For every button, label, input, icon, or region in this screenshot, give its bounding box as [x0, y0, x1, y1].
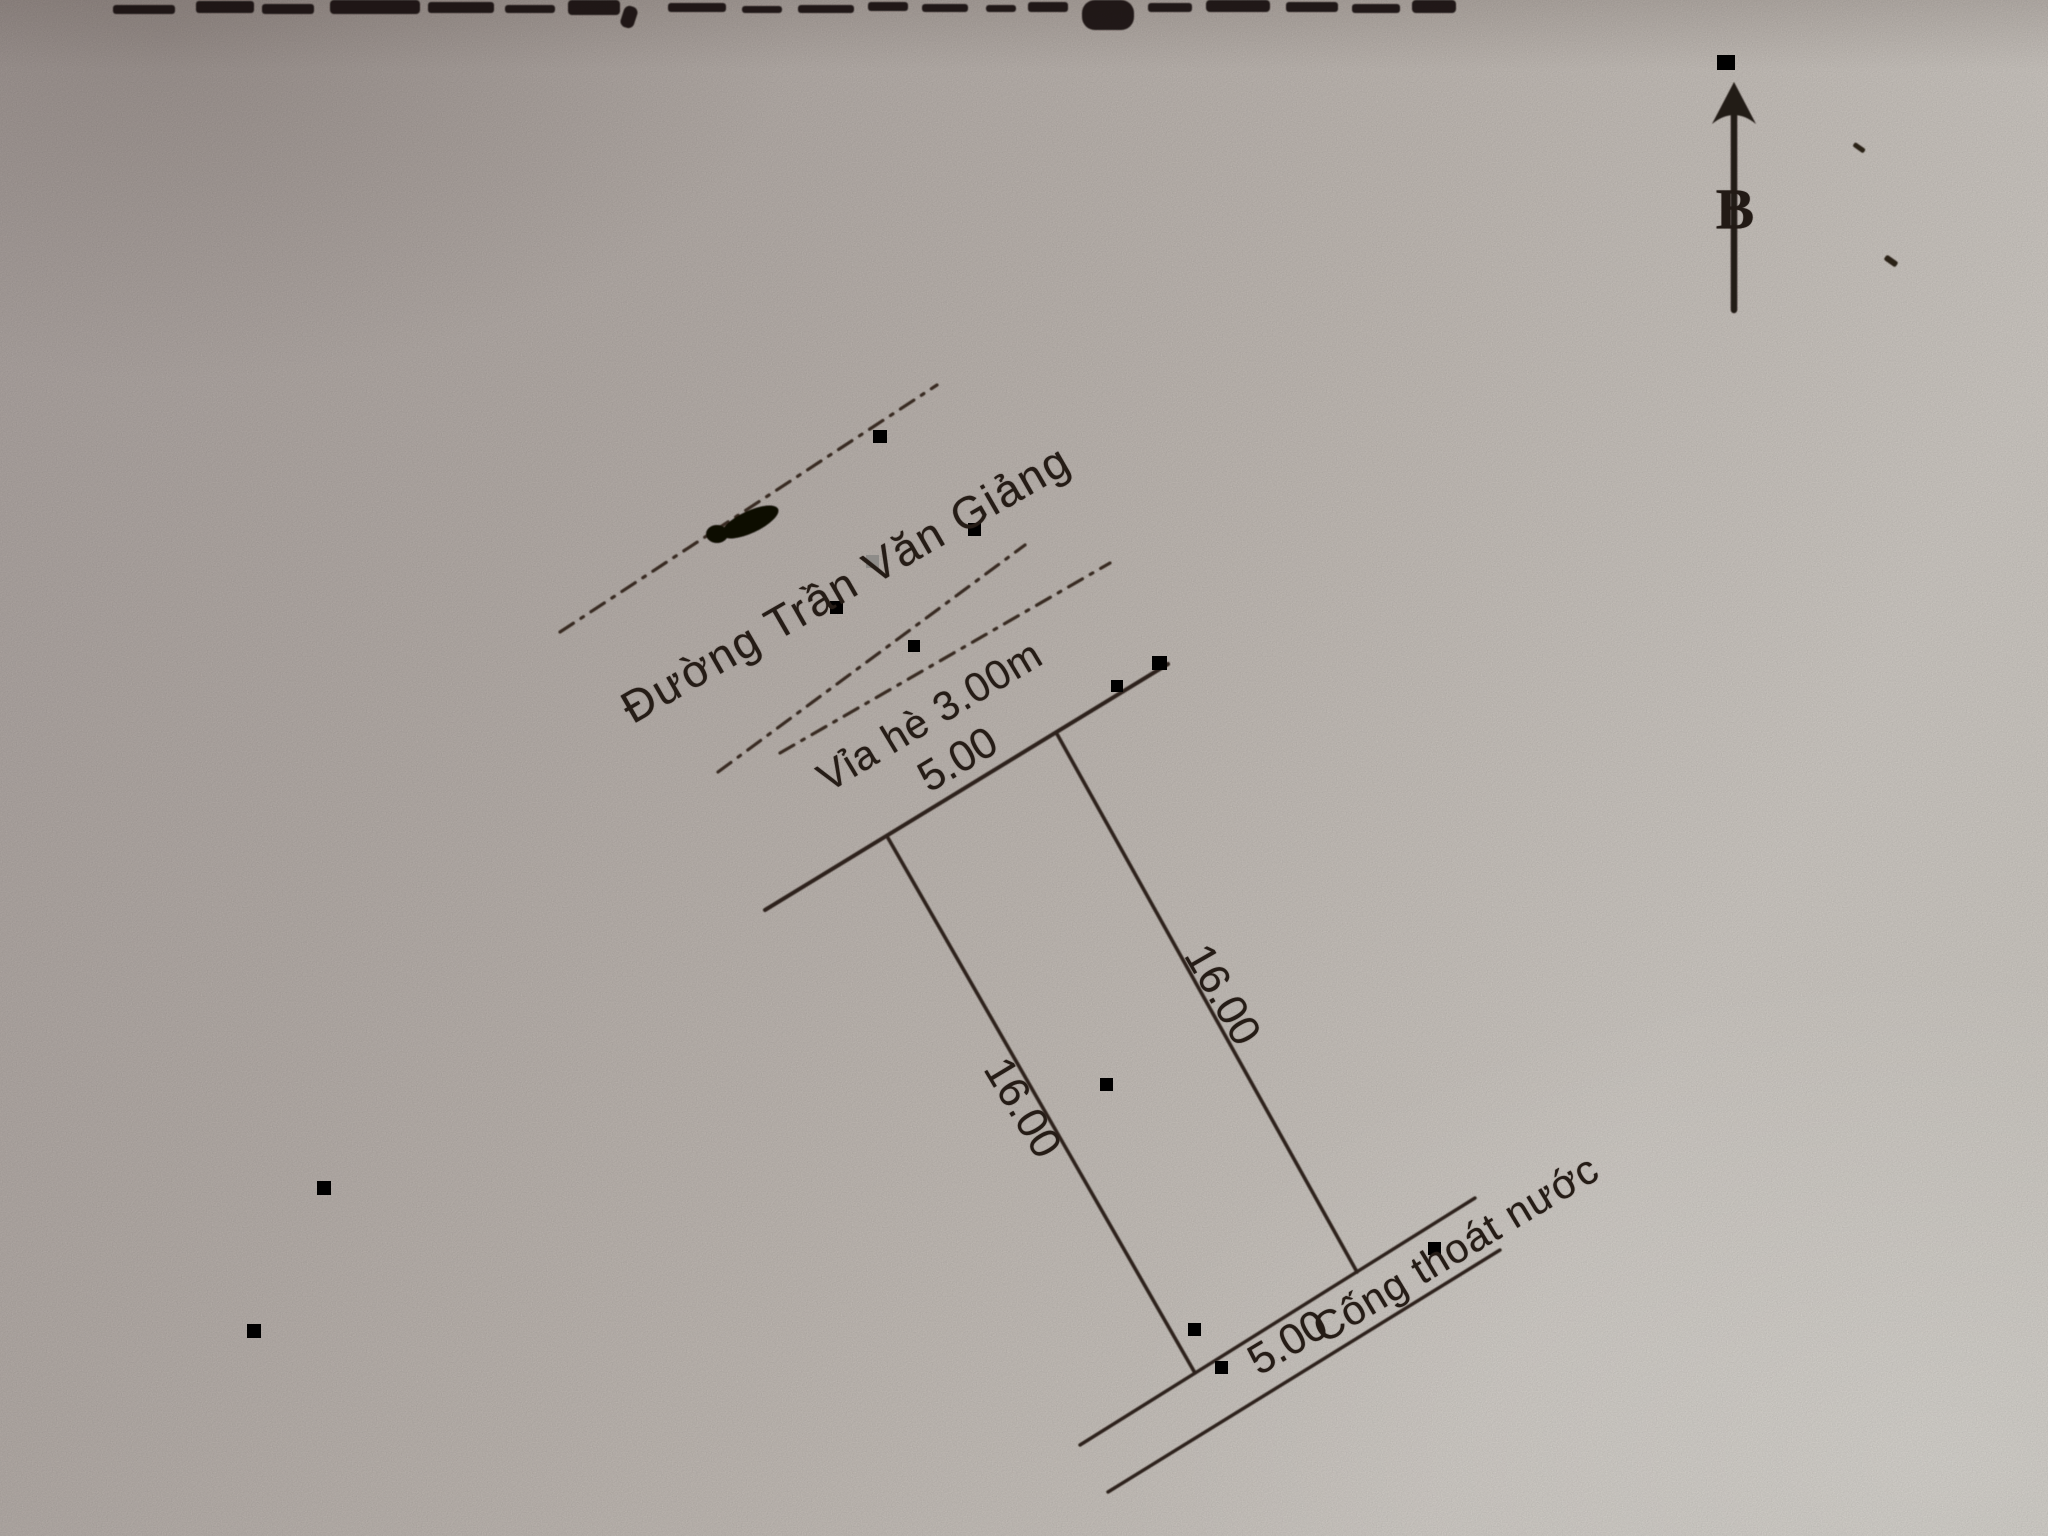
- right-depth-dimension: 16.00: [1174, 936, 1270, 1054]
- left-depth-dimension: 16.00: [973, 1049, 1070, 1166]
- north-label: B: [1716, 176, 1755, 243]
- drainage-label: Cống thoát nước: [1305, 1145, 1607, 1352]
- scanned-plot-sketch: Đường Trần Văn Giảng Vỉa hè 3.00m 5.00 1…: [0, 0, 2048, 1536]
- diagram-labels: Đường Trần Văn Giảng Vỉa hè 3.00m 5.00 1…: [0, 0, 2048, 1536]
